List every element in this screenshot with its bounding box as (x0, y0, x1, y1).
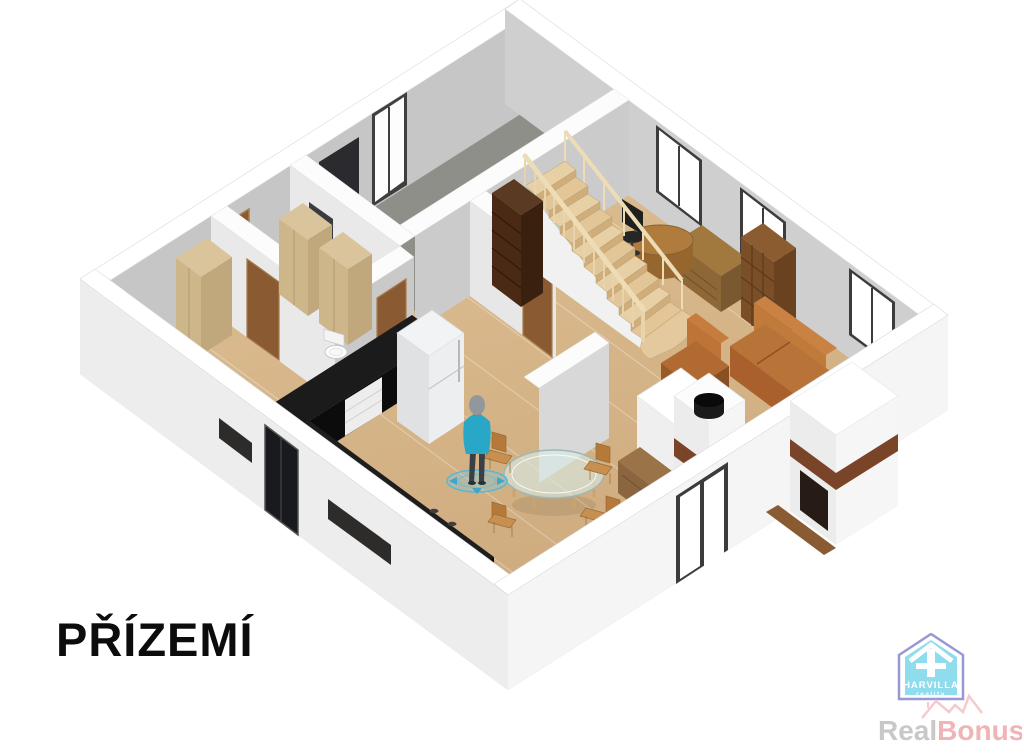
watermark-text: RealBonus.cz (878, 715, 1022, 746)
realbonus-watermark: RealBonus.cz (876, 688, 1022, 750)
dining-table (504, 450, 604, 516)
tall-bookcase (492, 179, 543, 307)
watermark-graphic: RealBonus.cz (876, 688, 1022, 750)
floor-plan-page: PŘÍZEMÍ HARVILLA reality RealBonus.cz (0, 0, 1024, 753)
hall-wardrobe-2 (319, 232, 372, 345)
floor-label: PŘÍZEMÍ (56, 612, 254, 667)
fridge (397, 310, 464, 444)
